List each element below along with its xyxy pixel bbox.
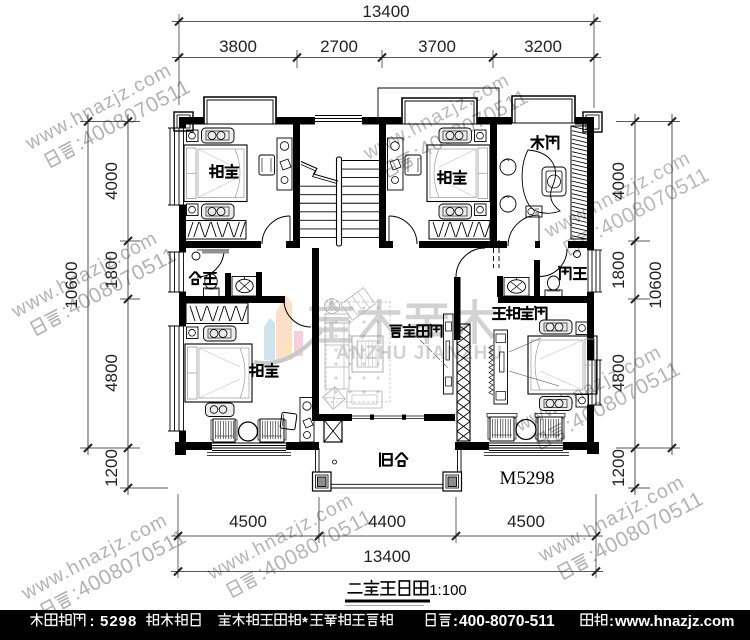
svg-text:4800: 4800 [609, 354, 628, 392]
svg-text:10600: 10600 [646, 261, 665, 308]
svg-text:4400: 4400 [368, 512, 406, 531]
svg-text:13400: 13400 [363, 547, 410, 566]
svg-text:2700: 2700 [320, 37, 358, 56]
svg-text:4500: 4500 [507, 512, 545, 531]
svg-text:3700: 3700 [418, 37, 456, 56]
svg-text:3800: 3800 [219, 37, 257, 56]
svg-text:4000: 4000 [609, 162, 628, 200]
svg-text:13400: 13400 [362, 2, 409, 21]
svg-text:1:100: 1:100 [429, 582, 467, 599]
svg-text:1800: 1800 [609, 251, 628, 289]
svg-text:4000: 4000 [102, 162, 121, 200]
svg-text:400-8070-511: 400-8070-511 [459, 613, 555, 630]
svg-text:*: * [302, 614, 308, 631]
svg-text:www.hnazjz.com: www.hnazjz.com [614, 613, 734, 630]
svg-text:4800: 4800 [102, 354, 121, 392]
svg-text:5298: 5298 [100, 613, 137, 630]
svg-text:3200: 3200 [524, 37, 562, 56]
svg-text:M5298: M5298 [500, 468, 555, 489]
svg-text:10600: 10600 [62, 261, 81, 308]
svg-text:1200: 1200 [102, 449, 121, 487]
svg-text:ANZHU JIANZHU: ANZHU JIANZHU [336, 343, 503, 364]
svg-text:1800: 1800 [102, 251, 121, 289]
svg-text::: : [453, 613, 458, 630]
svg-text::: : [90, 613, 95, 630]
svg-text:1200: 1200 [609, 449, 628, 487]
svg-text::: : [609, 613, 614, 630]
svg-text:4500: 4500 [229, 512, 267, 531]
